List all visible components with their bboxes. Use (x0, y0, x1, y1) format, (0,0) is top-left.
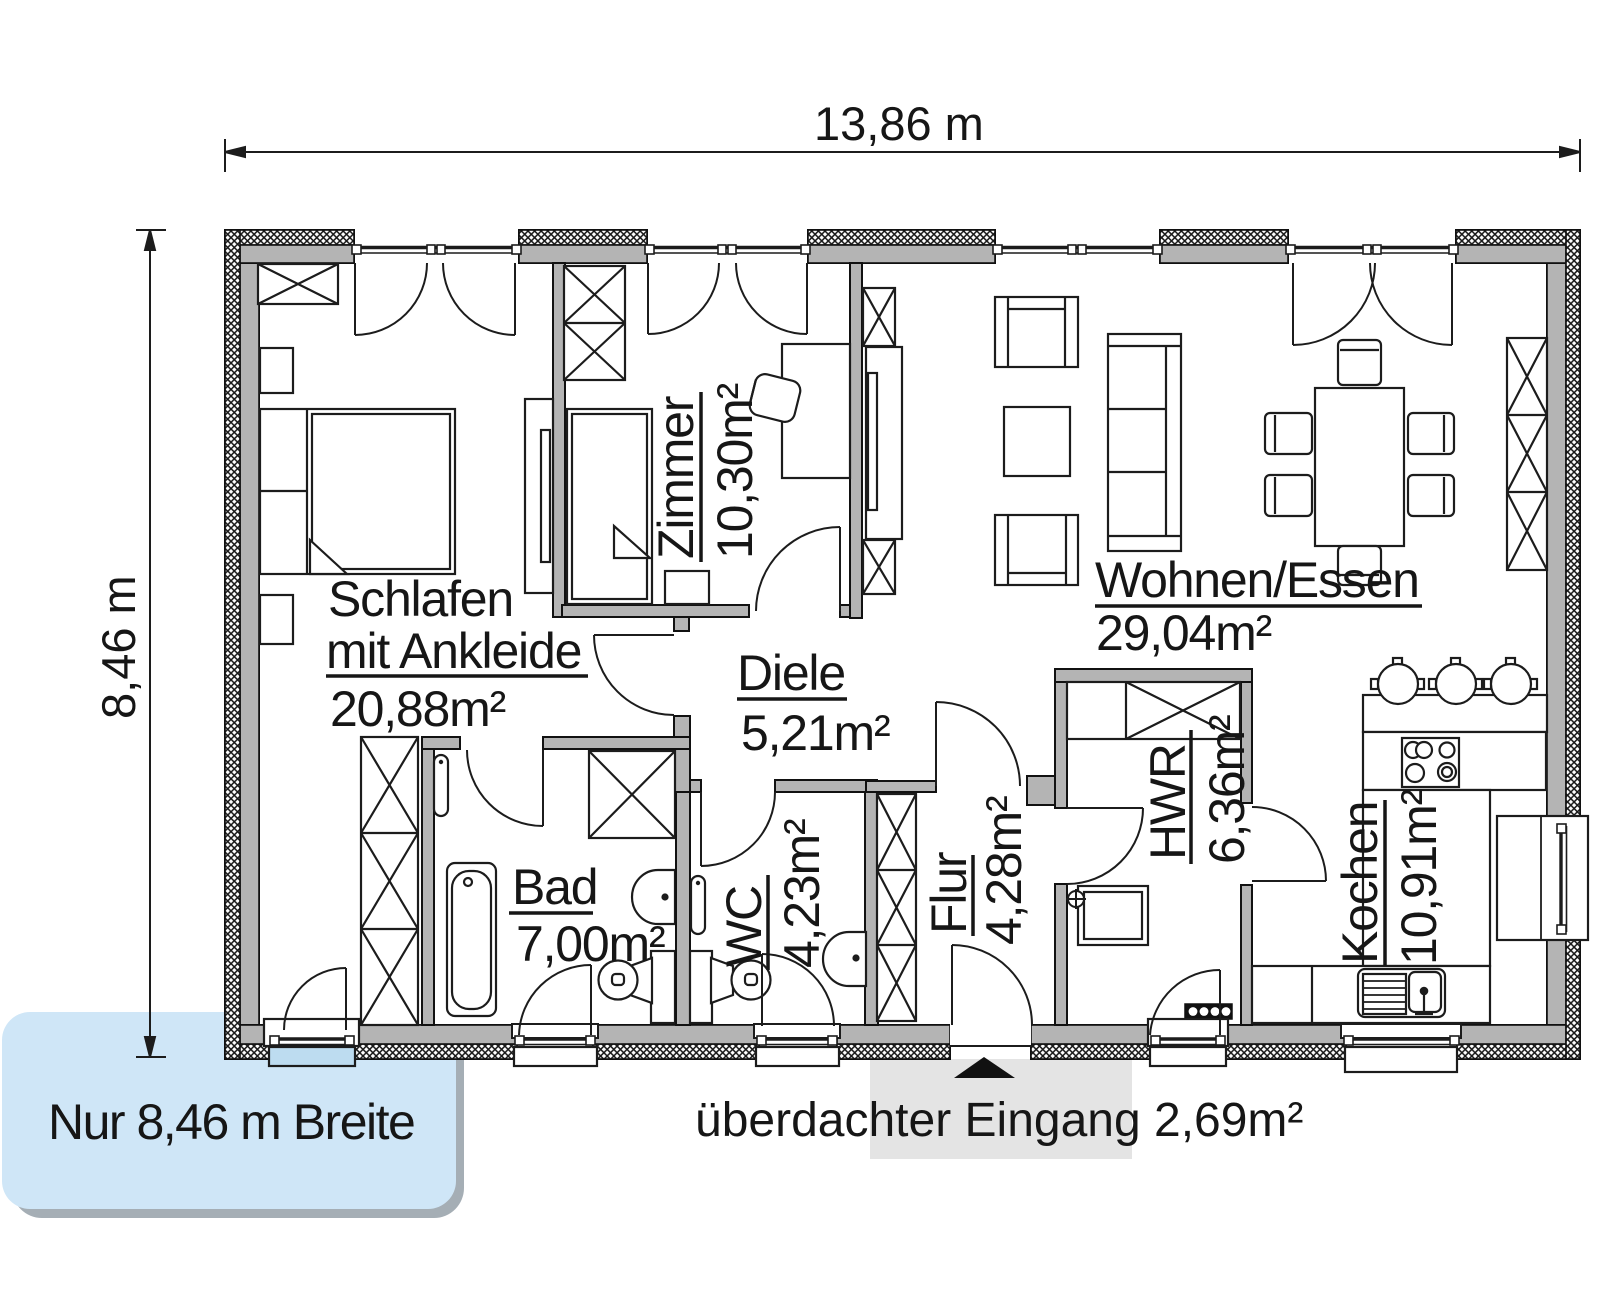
svg-text:10,30m²: 10,30m² (707, 383, 763, 559)
svg-text:Bad: Bad (512, 859, 597, 915)
svg-text:überdachter Eingang 2,69m²: überdachter Eingang 2,69m² (695, 1094, 1303, 1147)
svg-text:Diele: Diele (737, 645, 845, 701)
svg-text:Kochen: Kochen (1332, 802, 1388, 964)
svg-text:Schlafen: Schlafen (328, 571, 513, 627)
svg-text:6,36m²: 6,36m² (1199, 715, 1255, 864)
svg-text:Wohnen/Essen: Wohnen/Essen (1095, 552, 1419, 608)
svg-text:5,21m²: 5,21m² (741, 705, 890, 761)
svg-text:4,28m²: 4,28m² (976, 796, 1032, 945)
svg-text:7,00m²: 7,00m² (516, 916, 665, 972)
svg-text:20,88m²: 20,88m² (330, 681, 506, 737)
svg-text:13,86 m: 13,86 m (814, 97, 984, 150)
svg-text:29,04m²: 29,04m² (1096, 605, 1272, 661)
svg-text:HWR: HWR (1140, 744, 1196, 860)
svg-text:Nur 8,46 m Breite: Nur 8,46 m Breite (48, 1094, 414, 1150)
svg-text:Flur: Flur (921, 852, 977, 934)
svg-text:4,23m²: 4,23m² (774, 819, 830, 968)
svg-text:mit Ankleide: mit Ankleide (326, 623, 581, 679)
svg-text:10,91m²: 10,91m² (1391, 789, 1447, 965)
svg-text:Zimmer: Zimmer (648, 396, 704, 559)
svg-text:WC: WC (716, 886, 772, 967)
svg-text:8,46 m: 8,46 m (92, 575, 145, 719)
